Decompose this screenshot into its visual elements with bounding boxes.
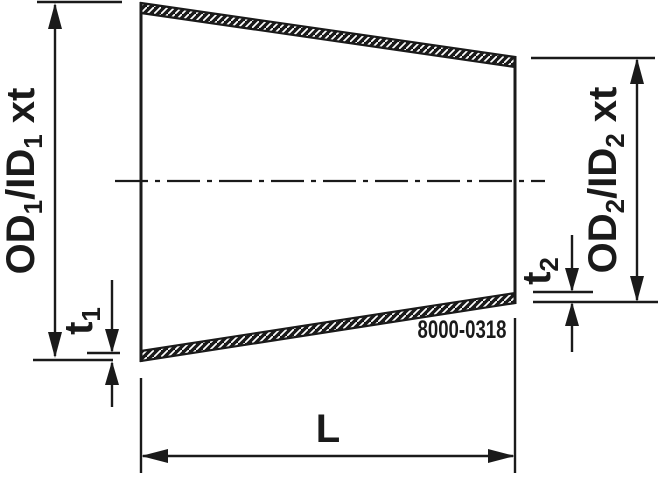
od1-label-sub1: 1 xyxy=(18,200,48,214)
od2-label: OD2/ID2xt xyxy=(581,87,630,274)
part-number: 8000-0318 xyxy=(418,316,507,344)
t1-label-sub: 1 xyxy=(76,307,106,321)
technical-drawing-page: OD1/ID1xt t1 OD2/ID2xt t2 L 8000-03 xyxy=(0,0,659,477)
od1-arrowhead-down xyxy=(48,332,62,358)
length-arrowhead-right xyxy=(488,449,515,463)
t2-arrowhead-up xyxy=(565,302,579,326)
od1-label-main: OD xyxy=(0,214,43,274)
t1-arrowhead-down xyxy=(105,329,119,353)
t1-arrowhead-up xyxy=(105,361,119,385)
od2-label-mid: /ID xyxy=(581,148,625,199)
od2-label-main: OD xyxy=(581,213,625,273)
od2-label-sub1: 2 xyxy=(600,199,630,213)
od1-label-suffix: xt xyxy=(0,88,43,124)
length-arrowhead-left xyxy=(141,449,168,463)
concentric-reducer-drawing: OD1/ID1xt t1 OD2/ID2xt t2 L 8000-03 xyxy=(0,0,659,477)
od1-label-mid: /ID xyxy=(0,149,43,200)
od2-arrowhead-up xyxy=(630,58,644,84)
length-label: L xyxy=(316,407,340,451)
t2-arrowhead-down xyxy=(565,268,579,292)
reducer-body xyxy=(115,2,545,362)
od2-label-suffix: xt xyxy=(581,87,625,123)
t2-label: t2 xyxy=(515,257,564,285)
od1-arrowhead-up xyxy=(48,3,62,29)
t1-label: t1 xyxy=(57,307,106,335)
od2-label-sub2: 2 xyxy=(600,133,630,147)
od1-label: OD1/ID1xt xyxy=(0,88,48,275)
t2-label-main: t xyxy=(515,272,559,285)
top-wall-section xyxy=(141,3,515,67)
od2-arrowhead-down xyxy=(630,276,644,302)
od1-label-sub2: 1 xyxy=(18,134,48,148)
t2-label-sub: 2 xyxy=(534,257,564,271)
t1-label-main: t xyxy=(57,322,101,335)
t1-dimension: t1 xyxy=(57,280,120,407)
od1-dimension: OD1/ID1xt xyxy=(0,2,122,360)
